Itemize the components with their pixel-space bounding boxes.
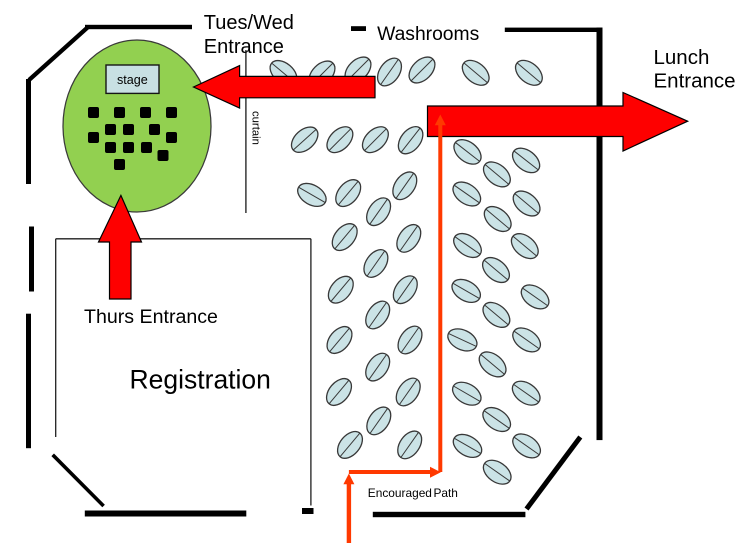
- svg-text:EncouragedPath: EncouragedPath: [368, 486, 458, 500]
- svg-text:Washrooms: Washrooms: [377, 24, 479, 45]
- svg-text:Entrance: Entrance: [204, 36, 284, 58]
- svg-text:Lunch: Lunch: [654, 46, 710, 69]
- svg-text:Thurs Entrance: Thurs Entrance: [84, 306, 218, 328]
- svg-text:Entrance: Entrance: [654, 70, 736, 93]
- svg-text:Registration: Registration: [130, 365, 271, 395]
- svg-text:curtain: curtain: [250, 111, 262, 145]
- svg-text:stage: stage: [117, 73, 148, 87]
- svg-text:Tues/Wed: Tues/Wed: [204, 12, 294, 34]
